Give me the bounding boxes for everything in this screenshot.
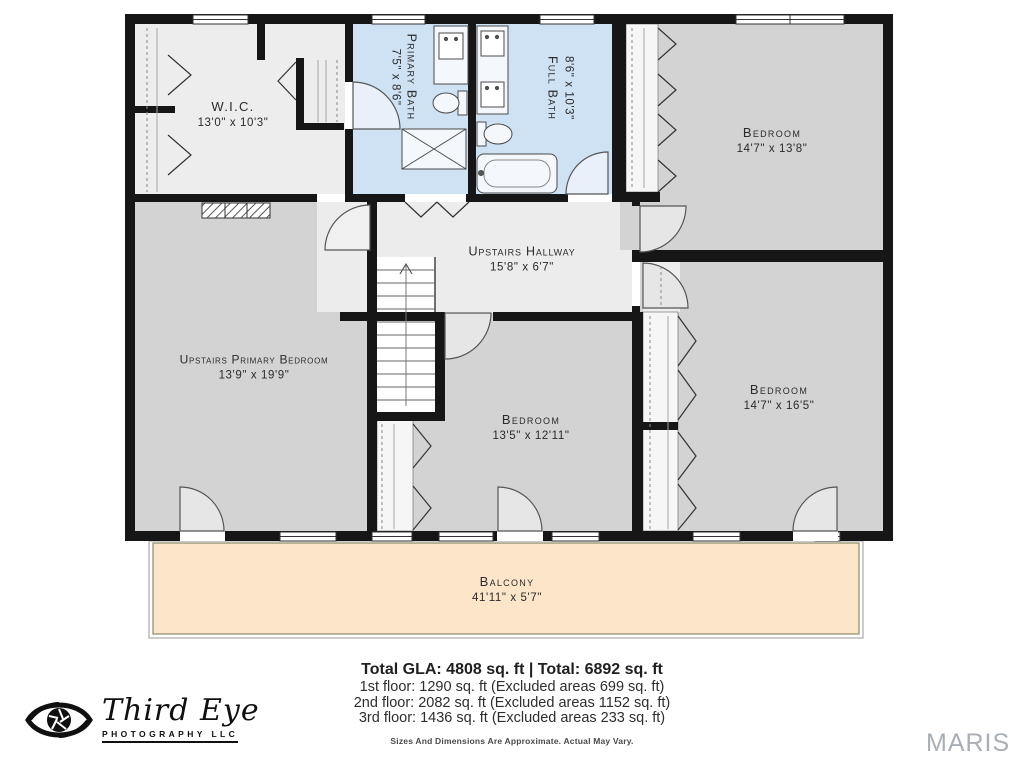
photographer-logo: Third Eye PHOTOGRAPHY LLC [24,692,260,748]
floor-plan-drawing [0,0,1024,768]
logo-name-text: Third Eye [102,698,260,724]
balcony-deck [149,541,863,638]
third-eye-logo-icon [24,692,94,748]
toilet-icon [433,91,467,115]
logo-subtitle-text: PHOTOGRAPHY LLC [102,729,238,743]
vanity-sink-icon [434,26,468,84]
room-fills [135,24,883,531]
bathtub-icon [477,154,557,193]
floor-plan-page: W.I.C. 13'0" x 10'3" Primary Bath 7'5" x… [0,0,1024,768]
maris-watermark: MARIS [926,729,1010,758]
total-gla-text: Total GLA: 4808 sq. ft | Total: 6892 sq.… [0,661,1024,679]
vanity-sink-icon [477,26,508,114]
hatched-strip [202,203,270,218]
shower-icon [402,129,466,169]
